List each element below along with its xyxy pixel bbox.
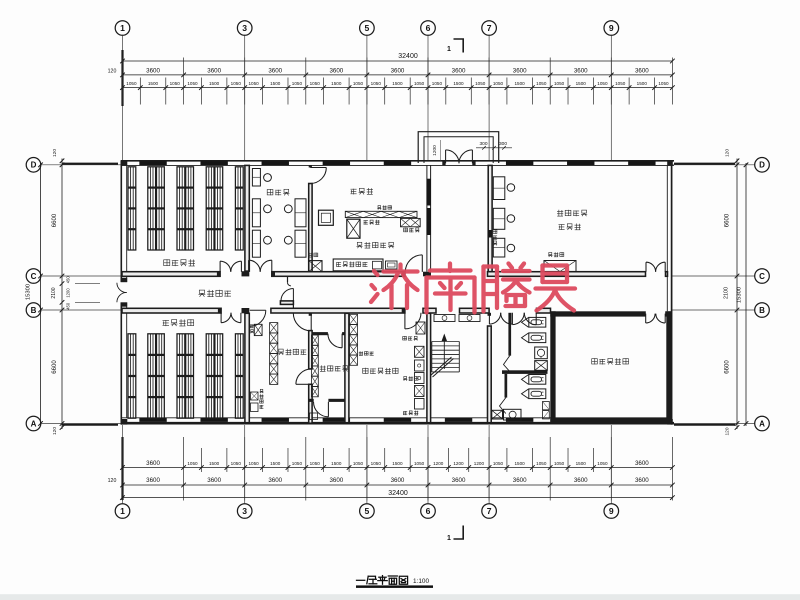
svg-text:5: 5 [365,23,370,33]
svg-text:3600: 3600 [146,67,160,74]
svg-text:1050: 1050 [536,461,547,466]
svg-text:1: 1 [447,535,451,542]
svg-text:1: 1 [447,46,451,53]
svg-text:A: A [31,419,37,428]
svg-text:1050: 1050 [187,81,198,86]
svg-text:1500: 1500 [331,461,342,466]
svg-text:6600: 6600 [725,360,731,374]
svg-text:A: A [759,419,765,428]
svg-text:3: 3 [242,23,247,33]
svg-text:450: 450 [66,276,71,284]
svg-text:1050: 1050 [597,461,608,466]
svg-text:1050: 1050 [615,81,626,86]
svg-text:1050: 1050 [536,81,547,86]
svg-text:15300: 15300 [737,287,743,303]
svg-text:2100: 2100 [51,287,57,298]
svg-text:3600: 3600 [513,67,527,74]
svg-text:2100: 2100 [724,287,730,299]
svg-text:1050: 1050 [597,81,608,86]
svg-text:1500: 1500 [576,81,587,86]
svg-text:120: 120 [108,478,117,484]
svg-text:300: 300 [499,141,507,147]
svg-text:6600: 6600 [52,213,58,227]
svg-text:3600: 3600 [574,67,588,74]
svg-text:3600: 3600 [574,477,588,484]
svg-text:1050: 1050 [371,461,382,466]
svg-text:3600: 3600 [452,477,466,484]
svg-text:1050: 1050 [231,81,242,86]
svg-text:15300: 15300 [26,284,32,300]
svg-text:1500: 1500 [392,81,403,86]
svg-text:1050: 1050 [170,81,181,86]
svg-text:1500: 1500 [270,461,281,466]
svg-text:6600: 6600 [725,213,731,227]
svg-text:1500: 1500 [453,81,464,86]
svg-text:6: 6 [426,23,431,33]
svg-text:1200: 1200 [453,461,464,466]
svg-text:1050: 1050 [353,461,364,466]
svg-text:1050: 1050 [310,81,321,86]
svg-text:3600: 3600 [146,477,160,484]
svg-text:1050: 1050 [187,461,198,466]
svg-text:120: 120 [108,68,117,74]
svg-text:1500: 1500 [514,81,525,86]
svg-text:1: 1 [120,506,125,516]
svg-text:32400: 32400 [398,53,418,60]
svg-text:C: C [31,272,37,281]
svg-text:1050: 1050 [126,81,137,86]
svg-text:7: 7 [487,23,492,33]
svg-text:5: 5 [365,506,370,516]
svg-text:1050: 1050 [475,81,486,86]
svg-text:3600: 3600 [635,67,649,74]
svg-text:32400: 32400 [388,490,408,497]
svg-text:1050: 1050 [292,461,303,466]
svg-text:1:100: 1:100 [413,578,429,585]
svg-text:300: 300 [479,141,487,147]
svg-text:1500: 1500 [514,461,525,466]
svg-text:1050: 1050 [353,81,364,86]
svg-text:3600: 3600 [391,67,405,74]
svg-text:1200: 1200 [432,145,438,156]
svg-text:3600: 3600 [146,460,160,467]
svg-text:1050: 1050 [658,81,669,86]
svg-text:D: D [31,161,37,170]
svg-text:1500: 1500 [331,81,342,86]
svg-text:1050: 1050 [231,461,242,466]
svg-text:3600: 3600 [635,460,649,467]
svg-text:1050: 1050 [414,461,425,466]
svg-text:1050: 1050 [248,461,259,466]
svg-text:1050: 1050 [554,81,565,86]
svg-text:B: B [759,306,765,315]
svg-text:1500: 1500 [392,461,403,466]
svg-text:3600: 3600 [513,477,527,484]
svg-text:1500: 1500 [270,81,281,86]
svg-text:1050: 1050 [371,81,382,86]
svg-text:3600: 3600 [207,67,221,74]
svg-text:3600: 3600 [268,477,282,484]
svg-text:3600: 3600 [391,477,405,484]
svg-text:1050: 1050 [554,461,565,466]
svg-text:1050: 1050 [248,81,259,86]
svg-text:120: 120 [52,427,58,435]
svg-text:1200: 1200 [474,461,485,466]
svg-text:3600: 3600 [268,67,282,74]
svg-text:1050: 1050 [292,81,303,86]
svg-text:6600: 6600 [52,360,58,374]
svg-text:1: 1 [120,23,125,33]
svg-text:3600: 3600 [329,477,343,484]
svg-text:1200: 1200 [66,288,71,298]
svg-text:1500: 1500 [209,461,220,466]
svg-text:3600: 3600 [207,477,221,484]
svg-text:1500: 1500 [148,81,159,86]
svg-text:1050: 1050 [493,81,504,86]
svg-text:1050: 1050 [414,81,425,86]
svg-text:3: 3 [242,506,247,516]
svg-text:1500: 1500 [637,81,648,86]
svg-text:9: 9 [609,506,614,516]
svg-text:1050: 1050 [432,81,443,86]
svg-text:450: 450 [66,302,71,310]
svg-text:3600: 3600 [329,67,343,74]
svg-text:120: 120 [725,149,731,157]
svg-text:1500: 1500 [576,461,587,466]
svg-text:6: 6 [426,506,431,516]
svg-text:3600: 3600 [452,67,466,74]
svg-text:120: 120 [725,427,731,435]
svg-text:1500: 1500 [209,81,220,86]
svg-text:7: 7 [487,506,492,516]
svg-text:120: 120 [52,149,58,157]
svg-text:1050: 1050 [310,461,321,466]
svg-text:9: 9 [609,23,614,33]
svg-text:1050: 1050 [493,461,504,466]
svg-text:1200: 1200 [433,461,444,466]
svg-text:3600: 3600 [635,477,649,484]
svg-text:D: D [759,161,765,170]
svg-text:B: B [31,306,37,315]
svg-text:C: C [759,272,765,281]
